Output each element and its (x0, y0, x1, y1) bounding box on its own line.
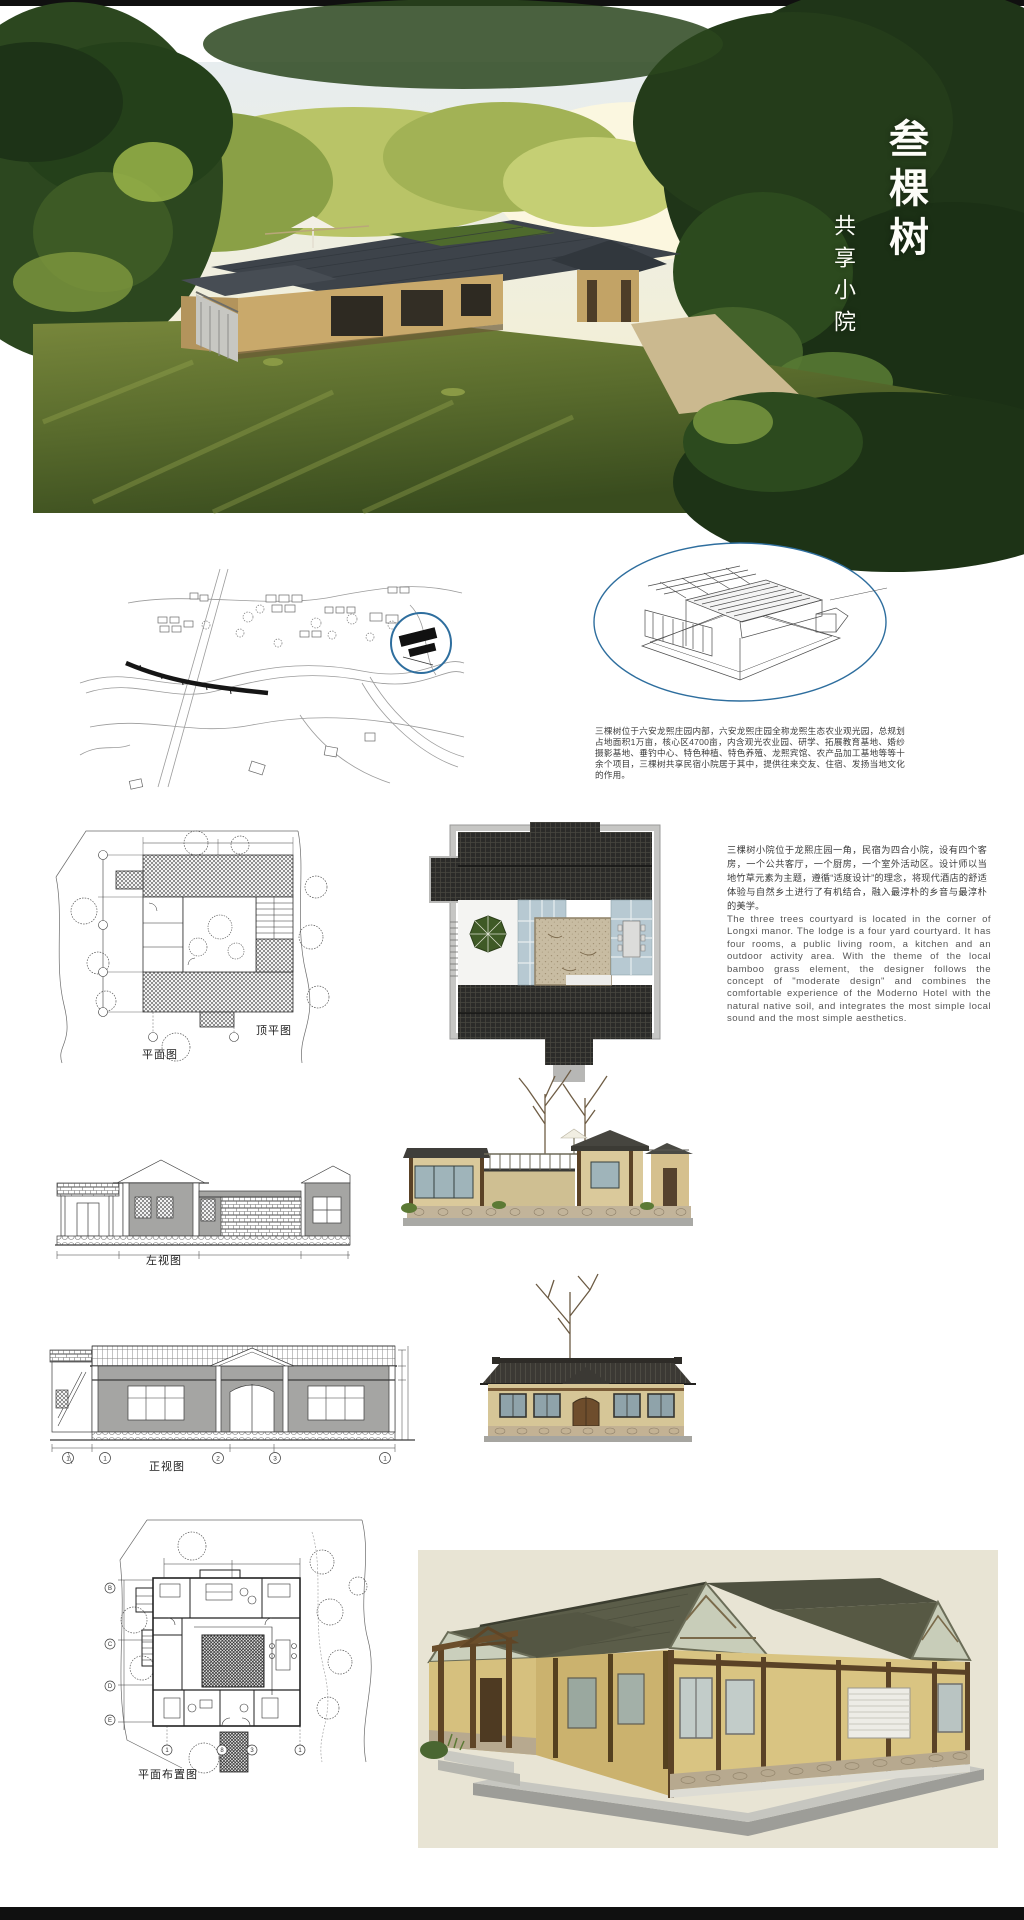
site-trees (202, 605, 426, 647)
grid-bubble-label: C (108, 1642, 113, 1648)
grid-bubble-label: 1 (383, 1456, 387, 1463)
grid-bubble-label: D (108, 1684, 113, 1690)
grid-bubble-label: 2 (216, 1456, 220, 1463)
courtyard-mat (535, 918, 611, 985)
bottom-border-bar (0, 1907, 1024, 1920)
floor-plan-label: 平面图 (142, 1046, 178, 1062)
grid-bubbles: 1 1 2 3 1 (63, 1452, 391, 1464)
layout-plan-drawing: B C D E 1 8 3 1 (72, 1500, 372, 1785)
layout-building (136, 1570, 300, 1726)
west-wing-roof (430, 857, 460, 902)
front-elevation-drawing: 1 1 2 3 1 (50, 1340, 415, 1465)
site-plan-sketch (70, 565, 465, 790)
main-road-highlight (126, 663, 268, 693)
grid-bubble-label: 1 (103, 1456, 107, 1463)
poster-subtitle: 共享小院 (826, 214, 858, 342)
courtyard (458, 900, 652, 985)
colored-roof-plan (430, 822, 680, 1084)
axonometric-sketch (590, 538, 890, 706)
canopy-fringe (203, 0, 723, 89)
design-paragraph-en: The three trees courtyard is located in … (727, 914, 991, 1026)
side-building (401, 1130, 693, 1226)
plan-building (116, 855, 293, 1027)
grid-bubble-label: 3 (273, 1456, 277, 1463)
left-elevation-label: 左视图 (146, 1252, 182, 1268)
left-elevation-drawing (55, 1145, 350, 1267)
grid-bubble-label: E (108, 1718, 112, 1724)
design-paragraph-cn: 三棵树小院位于龙熙庄园一角，民宿为四合小院，设有四个客房，一个公共客厅，一个厨房… (727, 843, 987, 913)
bare-tree (536, 1274, 598, 1362)
front-elevation-label: 正视图 (149, 1458, 185, 1474)
hero-render-photo: 叁棵树 共享小院 (33, 62, 991, 513)
grid-bubble-label: 1 (66, 1456, 70, 1463)
grid-bubble-label: B (108, 1586, 112, 1592)
bottom-roof (458, 985, 652, 1039)
presentation-board: 叁棵树 共享小院 (0, 0, 1024, 1920)
umbrella (470, 916, 506, 952)
site-intro-paragraph: 三棵树位于六安龙熙庄园内部，六安龙熙庄园全称龙熙生态农业观光园，总规划占地面积1… (595, 726, 905, 781)
layout-plan-label: 平面布置图 (138, 1766, 198, 1782)
perspective-render (418, 1550, 998, 1848)
roof-plan-label: 顶平图 (256, 1022, 292, 1038)
site-buildings (129, 587, 409, 789)
colored-front-elevation (478, 1262, 698, 1444)
front-building (480, 1357, 696, 1442)
poster-title: 叁棵树 (876, 118, 934, 265)
colored-side-elevation (395, 1058, 700, 1246)
